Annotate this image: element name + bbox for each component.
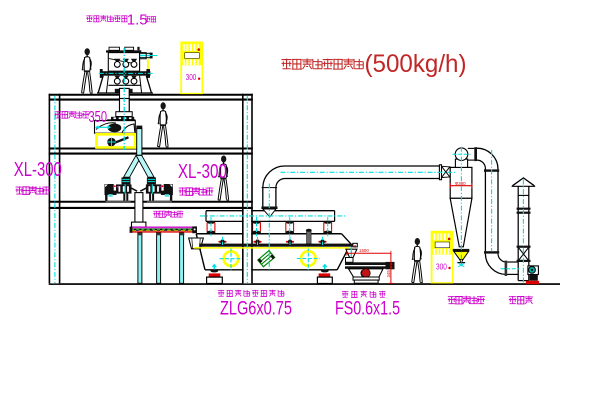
svg-text:FS0.6x1.5: FS0.6x1.5 (335, 299, 400, 320)
svg-text:XL-300: XL-300 (178, 161, 227, 183)
svg-text:1.5: 1.5 (127, 12, 148, 29)
svg-text:ZLG6x0.75: ZLG6x0.75 (220, 299, 292, 320)
svg-text:350: 350 (89, 109, 108, 126)
svg-text:1500: 1500 (359, 248, 369, 253)
svg-text:Φ300: Φ300 (455, 181, 466, 186)
svg-text:(500kg/h): (500kg/h) (365, 50, 467, 78)
svg-text:300: 300 (436, 263, 447, 272)
svg-text:300: 300 (186, 73, 197, 82)
svg-text:345: 345 (386, 270, 391, 278)
svg-text:XL-300: XL-300 (14, 159, 62, 181)
